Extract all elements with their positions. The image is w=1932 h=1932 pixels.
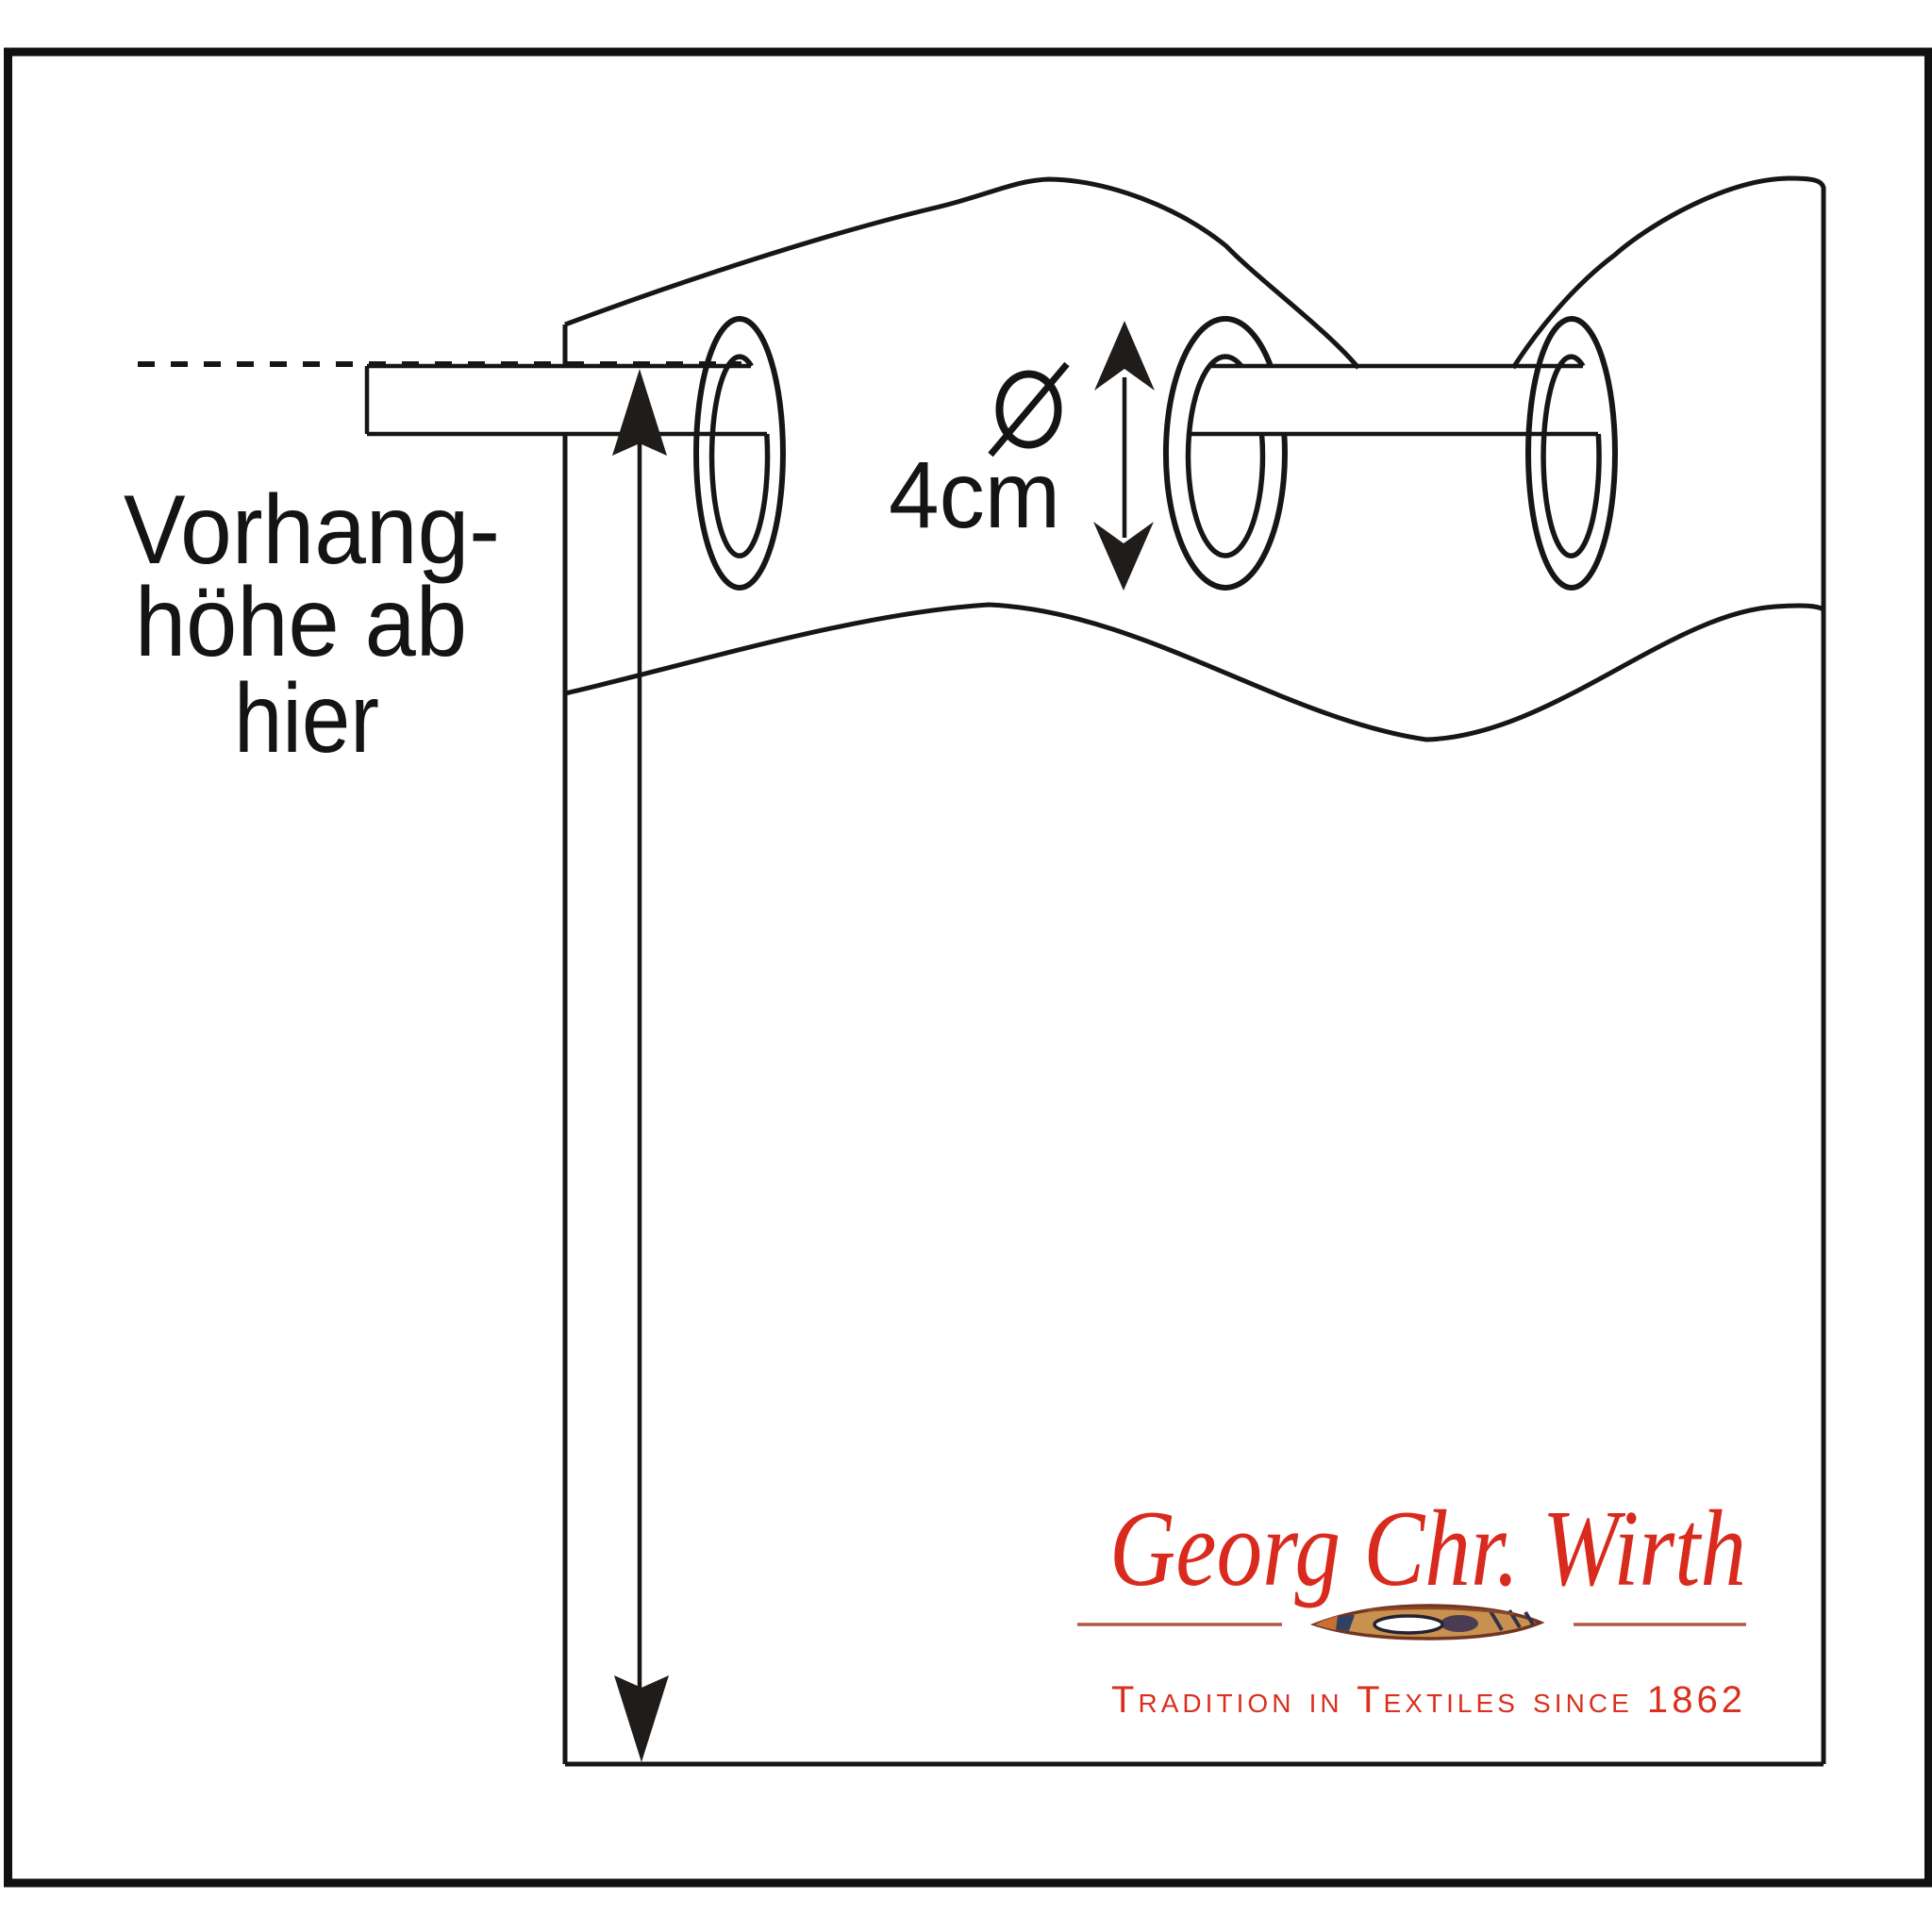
svg-text:Georg Chr. Wirth: Georg Chr. Wirth — [1109, 1489, 1746, 1609]
svg-text:hier: hier — [234, 664, 379, 774]
svg-text:4cm: 4cm — [889, 442, 1060, 548]
svg-text:Tradition in Textiles since 18: Tradition in Textiles since 1862 — [1111, 1679, 1742, 1721]
svg-text:höhe ab: höhe ab — [135, 568, 467, 677]
